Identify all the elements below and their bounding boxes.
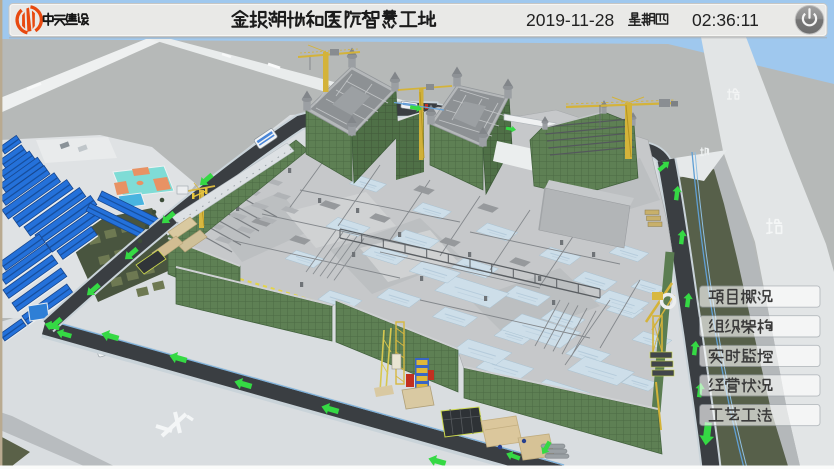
svg-text:2019-11-28: 2019-11-28	[526, 10, 614, 30]
svg-text:02:36:11: 02:36:11	[692, 10, 759, 30]
